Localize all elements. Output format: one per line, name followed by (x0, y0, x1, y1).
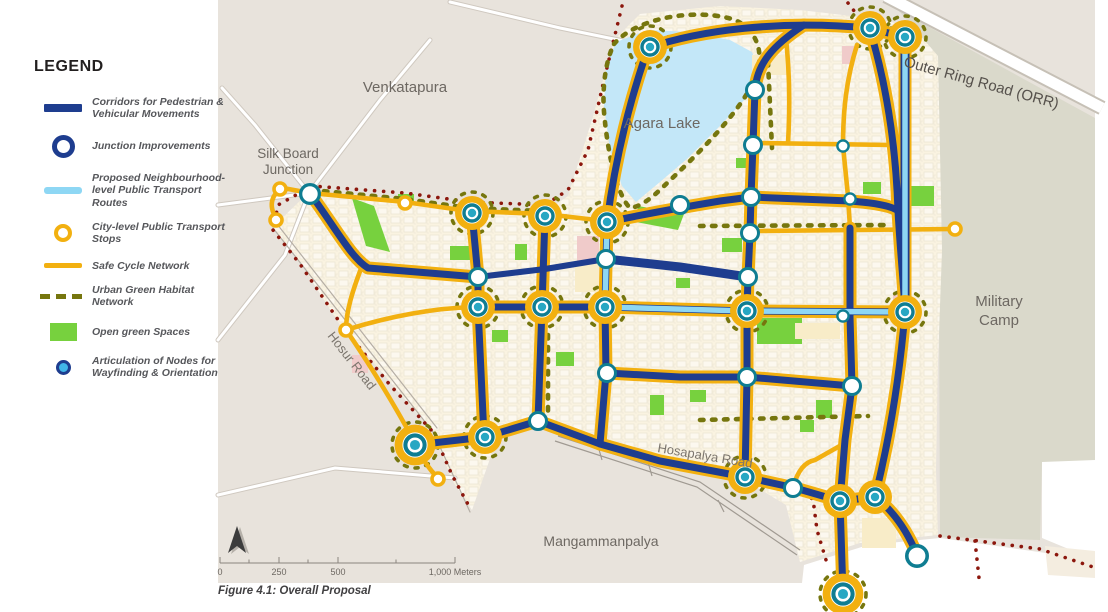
corridor-line-swatch (44, 104, 82, 112)
legend-item-label: Corridors for Pedestrian & Vehicular Mov… (92, 96, 230, 121)
legend-item-label: Urban Green Habitat Network (92, 284, 230, 309)
legend-item-label: Safe Cycle Network (92, 260, 230, 272)
legend-item-habitat: Urban Green Habitat Network (34, 284, 230, 309)
label-venkatapura: Venkatapura (363, 79, 448, 96)
figure-caption: Figure 4.1: Overall Proposal (218, 585, 371, 597)
scale-tick-250: 250 (271, 567, 286, 577)
scale-tick-1000: 1,000 Meters (429, 567, 482, 577)
label-mangammanpalya: Mangammanpalya (543, 533, 658, 549)
legend-item-wayfinding: Articulation of Nodes for Wayfinding & O… (34, 355, 230, 380)
legend-item-label: Open green Spaces (92, 326, 230, 338)
legend-item-stops: City-level Public Transport Stops (34, 221, 230, 246)
legend-panel: LEGEND Corridors for Pedestrian & Vehicu… (34, 58, 230, 380)
transit-line-swatch (44, 187, 82, 194)
legend-item-greenspace: Open green Spaces (34, 323, 230, 341)
green-habitat-dash-swatch (40, 294, 86, 299)
wayfinding-node-swatch (56, 360, 71, 375)
legend-item-label: Proposed Neighbourhood-level Public Tran… (92, 172, 230, 209)
junction-ring-swatch (52, 135, 75, 158)
legend-title: LEGEND (34, 58, 230, 76)
legend-item-label: City-level Public Transport Stops (92, 221, 230, 246)
label-agara-lake: Agara Lake (624, 115, 701, 132)
legend-item-label: Junction Improvements (92, 140, 230, 152)
transport-stop-swatch (54, 224, 72, 242)
open-green-swatch (50, 323, 77, 341)
label-silk-board-1: Silk Board (257, 146, 319, 161)
legend-item-transit: Proposed Neighbourhood-level Public Tran… (34, 172, 230, 209)
legend-item-corridors: Corridors for Pedestrian & Vehicular Mov… (34, 96, 230, 121)
cycle-line-swatch (44, 263, 82, 268)
scale-tick-500: 500 (330, 567, 345, 577)
legend-item-label: Articulation of Nodes for Wayfinding & O… (92, 355, 230, 380)
scale-tick-0: 0 (217, 567, 222, 577)
figure-page: Venkatapura Agara Lake Silk Board Juncti… (0, 0, 1108, 612)
label-military-camp-2: Camp (979, 312, 1019, 329)
legend-item-cycle: Safe Cycle Network (34, 260, 230, 272)
legend-item-junctions: Junction Improvements (34, 135, 230, 158)
label-military-camp-1: Military (975, 293, 1023, 310)
label-silk-board-2: Junction (263, 162, 313, 177)
